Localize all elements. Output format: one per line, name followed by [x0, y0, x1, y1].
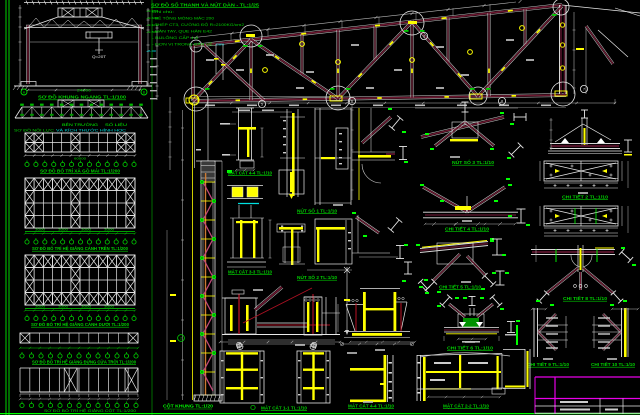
svg-text:CHI TIẾT 9 TL:1/10: CHI TIẾT 9 TL:1/10: [527, 362, 570, 367]
svg-text:3000: 3000: [81, 305, 91, 309]
svg-text:3000: 3000: [104, 228, 114, 232]
svg-text:SƠ ĐỒ BỐ TRÍ HỆ GIẰNG ĐỨNG CỬA: SƠ ĐỒ BỐ TRÍ HỆ GIẰNG ĐỨNG CỬA TRỜI TL:1…: [32, 360, 137, 365]
svg-text:60000: 60000: [74, 157, 86, 161]
svg-text:3000: 3000: [58, 305, 68, 309]
svg-text:CỘT KHUNG TL:1/20: CỘT KHUNG TL:1/20: [163, 404, 214, 409]
svg-text:MẶT CẮT 3-3 TL:1/10: MẶT CẮT 3-3 TL:1/10: [228, 270, 273, 275]
svg-text:2: 2: [180, 337, 182, 341]
svg-text:NÚT SỐ 3 TL:1/10: NÚT SỐ 3 TL:1/10: [452, 160, 495, 165]
svg-text:- BÊ TÔNG MÓNG MÁC 200: - BÊ TÔNG MÓNG MÁC 200: [152, 16, 215, 21]
svg-text:3000: 3000: [81, 228, 91, 232]
svg-text:+6.00: +6.00: [146, 49, 156, 53]
svg-text:SƠ ĐỒ BỐ TRÍ HỆ GIẰNG CÁNH TRÊ: SƠ ĐỒ BỐ TRÍ HỆ GIẰNG CÁNH TRÊN TL:1/200: [32, 246, 129, 251]
svg-text:MẶT CẮT 1-1 TL:1/10: MẶT CẮT 1-1 TL:1/10: [261, 406, 308, 411]
svg-text:CHI TIẾT 2 TL:1/10: CHI TIẾT 2 TL:1/10: [562, 195, 609, 200]
svg-text:24000: 24000: [77, 89, 91, 93]
svg-text:CHI TIẾT 8 TL:1/10: CHI TIẾT 8 TL:1/10: [563, 296, 608, 301]
svg-text:mm: mm: [216, 42, 225, 47]
svg-text:B: B: [143, 91, 145, 95]
svg-text:- THÉP CT3, CƯỜNG ĐỘ R=2100KG/: - THÉP CT3, CƯỜNG ĐỘ R=2100KG/cm2: [152, 22, 245, 27]
svg-text:- ĐƠN VỊ TRONG BẢN VẼ:: - ĐƠN VỊ TRONG BẢN VẼ:: [152, 42, 214, 47]
svg-text:NÚT SỐ 1 TL:1/10: NÚT SỐ 1 TL:1/10: [297, 209, 338, 214]
svg-text:NÚT SỐ 2 TL:1/10: NÚT SỐ 2 TL:1/10: [297, 275, 338, 280]
svg-text:MẶT CẮT 4-4 TL:1/10: MẶT CẮT 4-4 TL:1/10: [228, 171, 273, 176]
svg-text:3000: 3000: [35, 305, 45, 309]
svg-text:3000: 3000: [104, 305, 114, 309]
svg-text:CHI TIẾT 10 TL:1/10: CHI TIẾT 10 TL:1/10: [591, 362, 636, 367]
svg-text:SƠ ĐỒ BỐ TRÍ HỆ GIẰNG CỘT TL:1: SƠ ĐỒ BỐ TRÍ HỆ GIẰNG CỘT TL:1/200: [44, 408, 137, 413]
svg-text:3: 3: [423, 35, 425, 39]
svg-text:MẶT CẮT 2-2 TL:1/10: MẶT CẮT 2-2 TL:1/10: [443, 404, 490, 409]
svg-text:BÊN TRƯỜNG: BÊN TRƯỜNG: [62, 122, 98, 127]
svg-text:VÀ KÍCH THƯỚC HÌNH HỌC: VÀ KÍCH THƯỚC HÌNH HỌC: [56, 128, 126, 133]
svg-text:SƠ ĐỒ BỐ TRÍ XÀ GỒ MÁI TL:1/20: SƠ ĐỒ BỐ TRÍ XÀ GỒ MÁI TL:1/200: [40, 169, 121, 174]
svg-text:- HÀN TAY, QUE HÀN E42: - HÀN TAY, QUE HÀN E42: [152, 29, 213, 34]
svg-text:CHI TIẾT 4 TL:1/10: CHI TIẾT 4 TL:1/10: [445, 227, 490, 232]
svg-text:- BULÔNG CẤP 4.6: - BULÔNG CẤP 4.6: [152, 35, 199, 40]
svg-text:CHI TIẾT 6 TL:1/10: CHI TIẾT 6 TL:1/10: [447, 346, 494, 351]
svg-text:Q=20T: Q=20T: [92, 55, 106, 59]
svg-text:3000: 3000: [58, 228, 68, 232]
svg-text:MẶT CẮT 4-4 TL:1/10: MẶT CẮT 4-4 TL:1/10: [348, 404, 395, 409]
svg-text:CHI TIẾT 5 TL:1/10: CHI TIẾT 5 TL:1/10: [439, 285, 482, 290]
svg-text:3000: 3000: [35, 228, 45, 232]
svg-text:SƠ ĐỒ SỐ THANH VÀ NÚT DÀN - TL: SƠ ĐỒ SỐ THANH VÀ NÚT DÀN - TL:1/25: [151, 3, 260, 8]
svg-text:SƠ ĐỒ BỐ TRÍ HỆ GIẰNG CÁNH DƯỚ: SƠ ĐỒ BỐ TRÍ HỆ GIẰNG CÁNH DƯỚI TL:1/200: [31, 322, 130, 327]
svg-text:7: 7: [583, 88, 585, 92]
svg-text:SỐ LIỆU: SỐ LIỆU: [105, 122, 127, 127]
svg-text:SƠ ĐỒ NỘI LỰC: SƠ ĐỒ NỘI LỰC: [14, 128, 54, 133]
svg-text:Ghi chú:: Ghi chú:: [152, 9, 174, 14]
svg-text:SƠ ĐỒ KHUNG NGANG TL:1/100: SƠ ĐỒ KHUNG NGANG TL:1/100: [38, 94, 127, 100]
